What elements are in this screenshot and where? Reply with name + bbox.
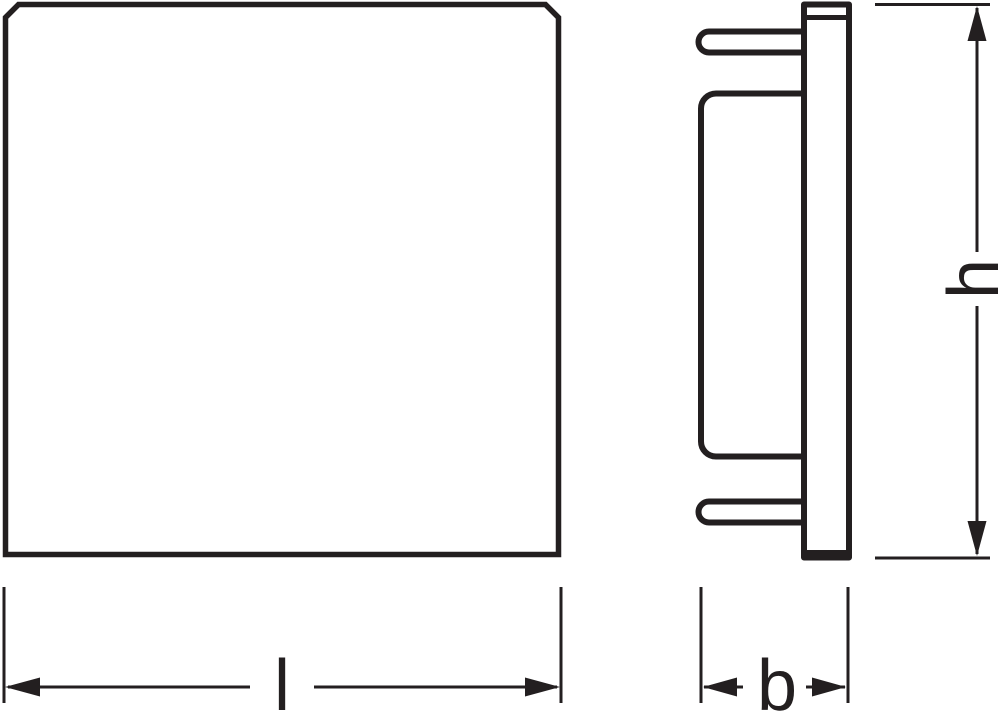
front-view [6, 5, 559, 555]
dimension-b-arrow-right [812, 678, 846, 697]
end-cap-dimension-drawing: l b h [0, 0, 1000, 713]
side-view-top-pin [699, 32, 807, 53]
dimension-h-arrow-top [968, 6, 987, 41]
dimension-b-arrow-left [703, 678, 737, 697]
dimension-h-label: h [934, 259, 1000, 299]
dimension-l-arrow-right [525, 678, 560, 697]
dimension-h-arrow-bottom [968, 521, 987, 556]
dimension-l-arrow-left [5, 678, 40, 697]
side-view-bottom-pin [699, 502, 807, 523]
side-view-plate [804, 5, 849, 558]
dimension-l: l [4, 587, 561, 713]
dimension-b: b [701, 587, 848, 713]
side-view [699, 5, 853, 558]
technical-drawing-canvas: l b h [0, 0, 1000, 713]
dimension-l-label: l [274, 646, 290, 713]
side-view-body [701, 94, 806, 457]
dimension-h: h [875, 5, 1000, 559]
front-view-outline [6, 5, 559, 555]
dimension-b-label: b [757, 646, 797, 713]
